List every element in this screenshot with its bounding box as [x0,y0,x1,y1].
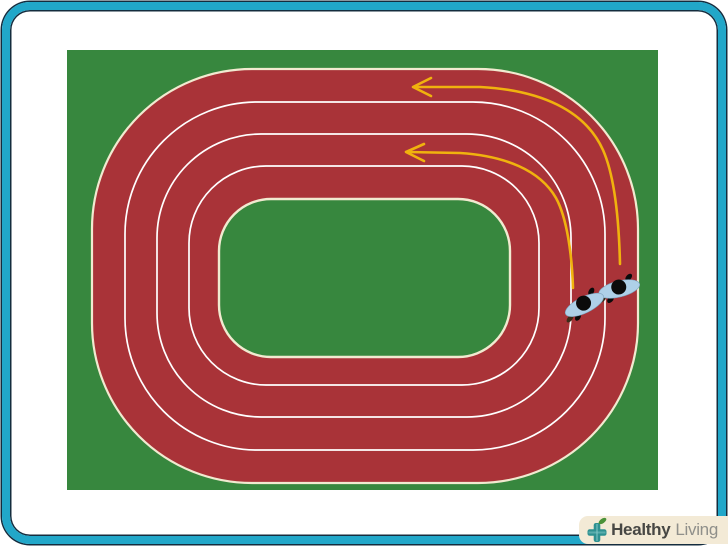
infield [219,199,510,357]
plus-highlight [589,532,606,534]
illustration-canvas: Healthy Living [0,0,728,546]
brand-name-light: Living [675,520,718,540]
healthy-living-watermark: Healthy Living [579,516,728,544]
medical-plus-leaf-icon [585,517,609,543]
brand-name-bold: Healthy [611,520,670,540]
track-illustration [0,0,728,546]
